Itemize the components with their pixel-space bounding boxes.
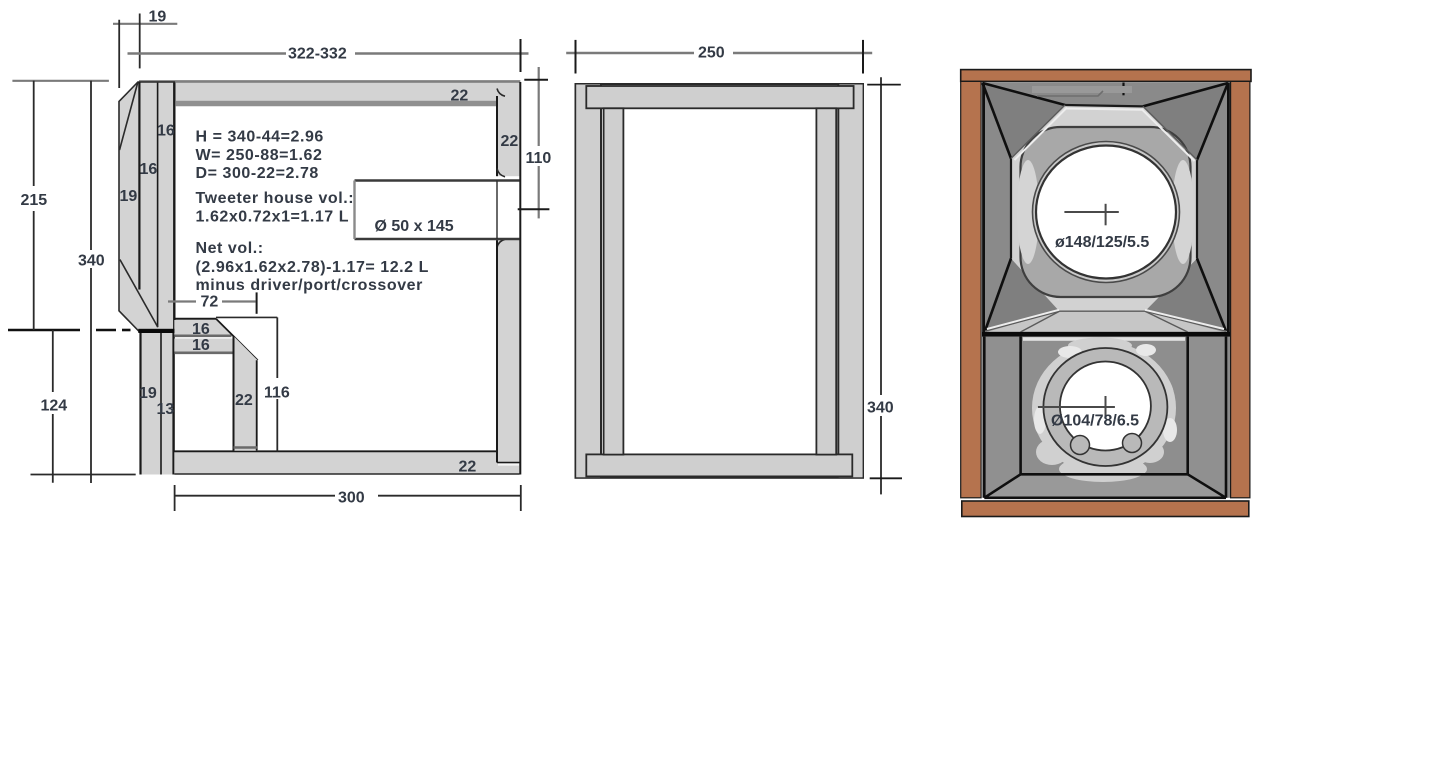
svg-text:H = 340-44=2.96: H = 340-44=2.96 bbox=[196, 129, 324, 146]
svg-text:22: 22 bbox=[501, 133, 519, 150]
svg-text:Net vol.:: Net vol.: bbox=[196, 240, 264, 257]
svg-text:22: 22 bbox=[459, 459, 477, 476]
svg-text:250: 250 bbox=[698, 45, 725, 62]
svg-text:16: 16 bbox=[192, 337, 210, 354]
svg-text:340: 340 bbox=[867, 400, 894, 417]
svg-text:340: 340 bbox=[78, 253, 105, 270]
svg-text:300: 300 bbox=[338, 490, 365, 507]
svg-text:72: 72 bbox=[201, 294, 219, 311]
svg-text:19: 19 bbox=[139, 385, 157, 402]
svg-text:22: 22 bbox=[235, 392, 253, 409]
svg-text:13: 13 bbox=[157, 401, 175, 418]
svg-text:minus driver/port/crossover: minus driver/port/crossover bbox=[196, 277, 423, 294]
svg-text:16: 16 bbox=[140, 161, 158, 178]
svg-text:D= 300-22=2.78: D= 300-22=2.78 bbox=[196, 165, 319, 182]
svg-text:124: 124 bbox=[41, 398, 68, 415]
svg-text:116: 116 bbox=[264, 385, 290, 402]
svg-text:(2.96x1.62x2.78)-1.17= 12.2 L: (2.96x1.62x2.78)-1.17= 12.2 L bbox=[196, 259, 429, 276]
svg-text:215: 215 bbox=[21, 192, 48, 209]
svg-text:322-332: 322-332 bbox=[288, 46, 347, 63]
svg-text:Tweeter house vol.:: Tweeter house vol.: bbox=[196, 190, 355, 207]
svg-text:Ø 50 x 145: Ø 50 x 145 bbox=[375, 218, 454, 235]
svg-text:19: 19 bbox=[120, 188, 138, 205]
svg-text:W= 250-88=1.62: W= 250-88=1.62 bbox=[196, 147, 323, 164]
svg-text:1.62x0.72x1=1.17 L: 1.62x0.72x1=1.17 L bbox=[196, 209, 350, 226]
svg-text:22: 22 bbox=[451, 88, 469, 105]
svg-text:Ø104/78/6.5: Ø104/78/6.5 bbox=[1051, 413, 1139, 430]
svg-text:110: 110 bbox=[526, 150, 552, 167]
svg-text:ø148/125/5.5: ø148/125/5.5 bbox=[1055, 234, 1149, 251]
svg-text:16: 16 bbox=[192, 321, 210, 338]
svg-text:19: 19 bbox=[149, 9, 167, 26]
svg-text:16: 16 bbox=[157, 123, 175, 140]
